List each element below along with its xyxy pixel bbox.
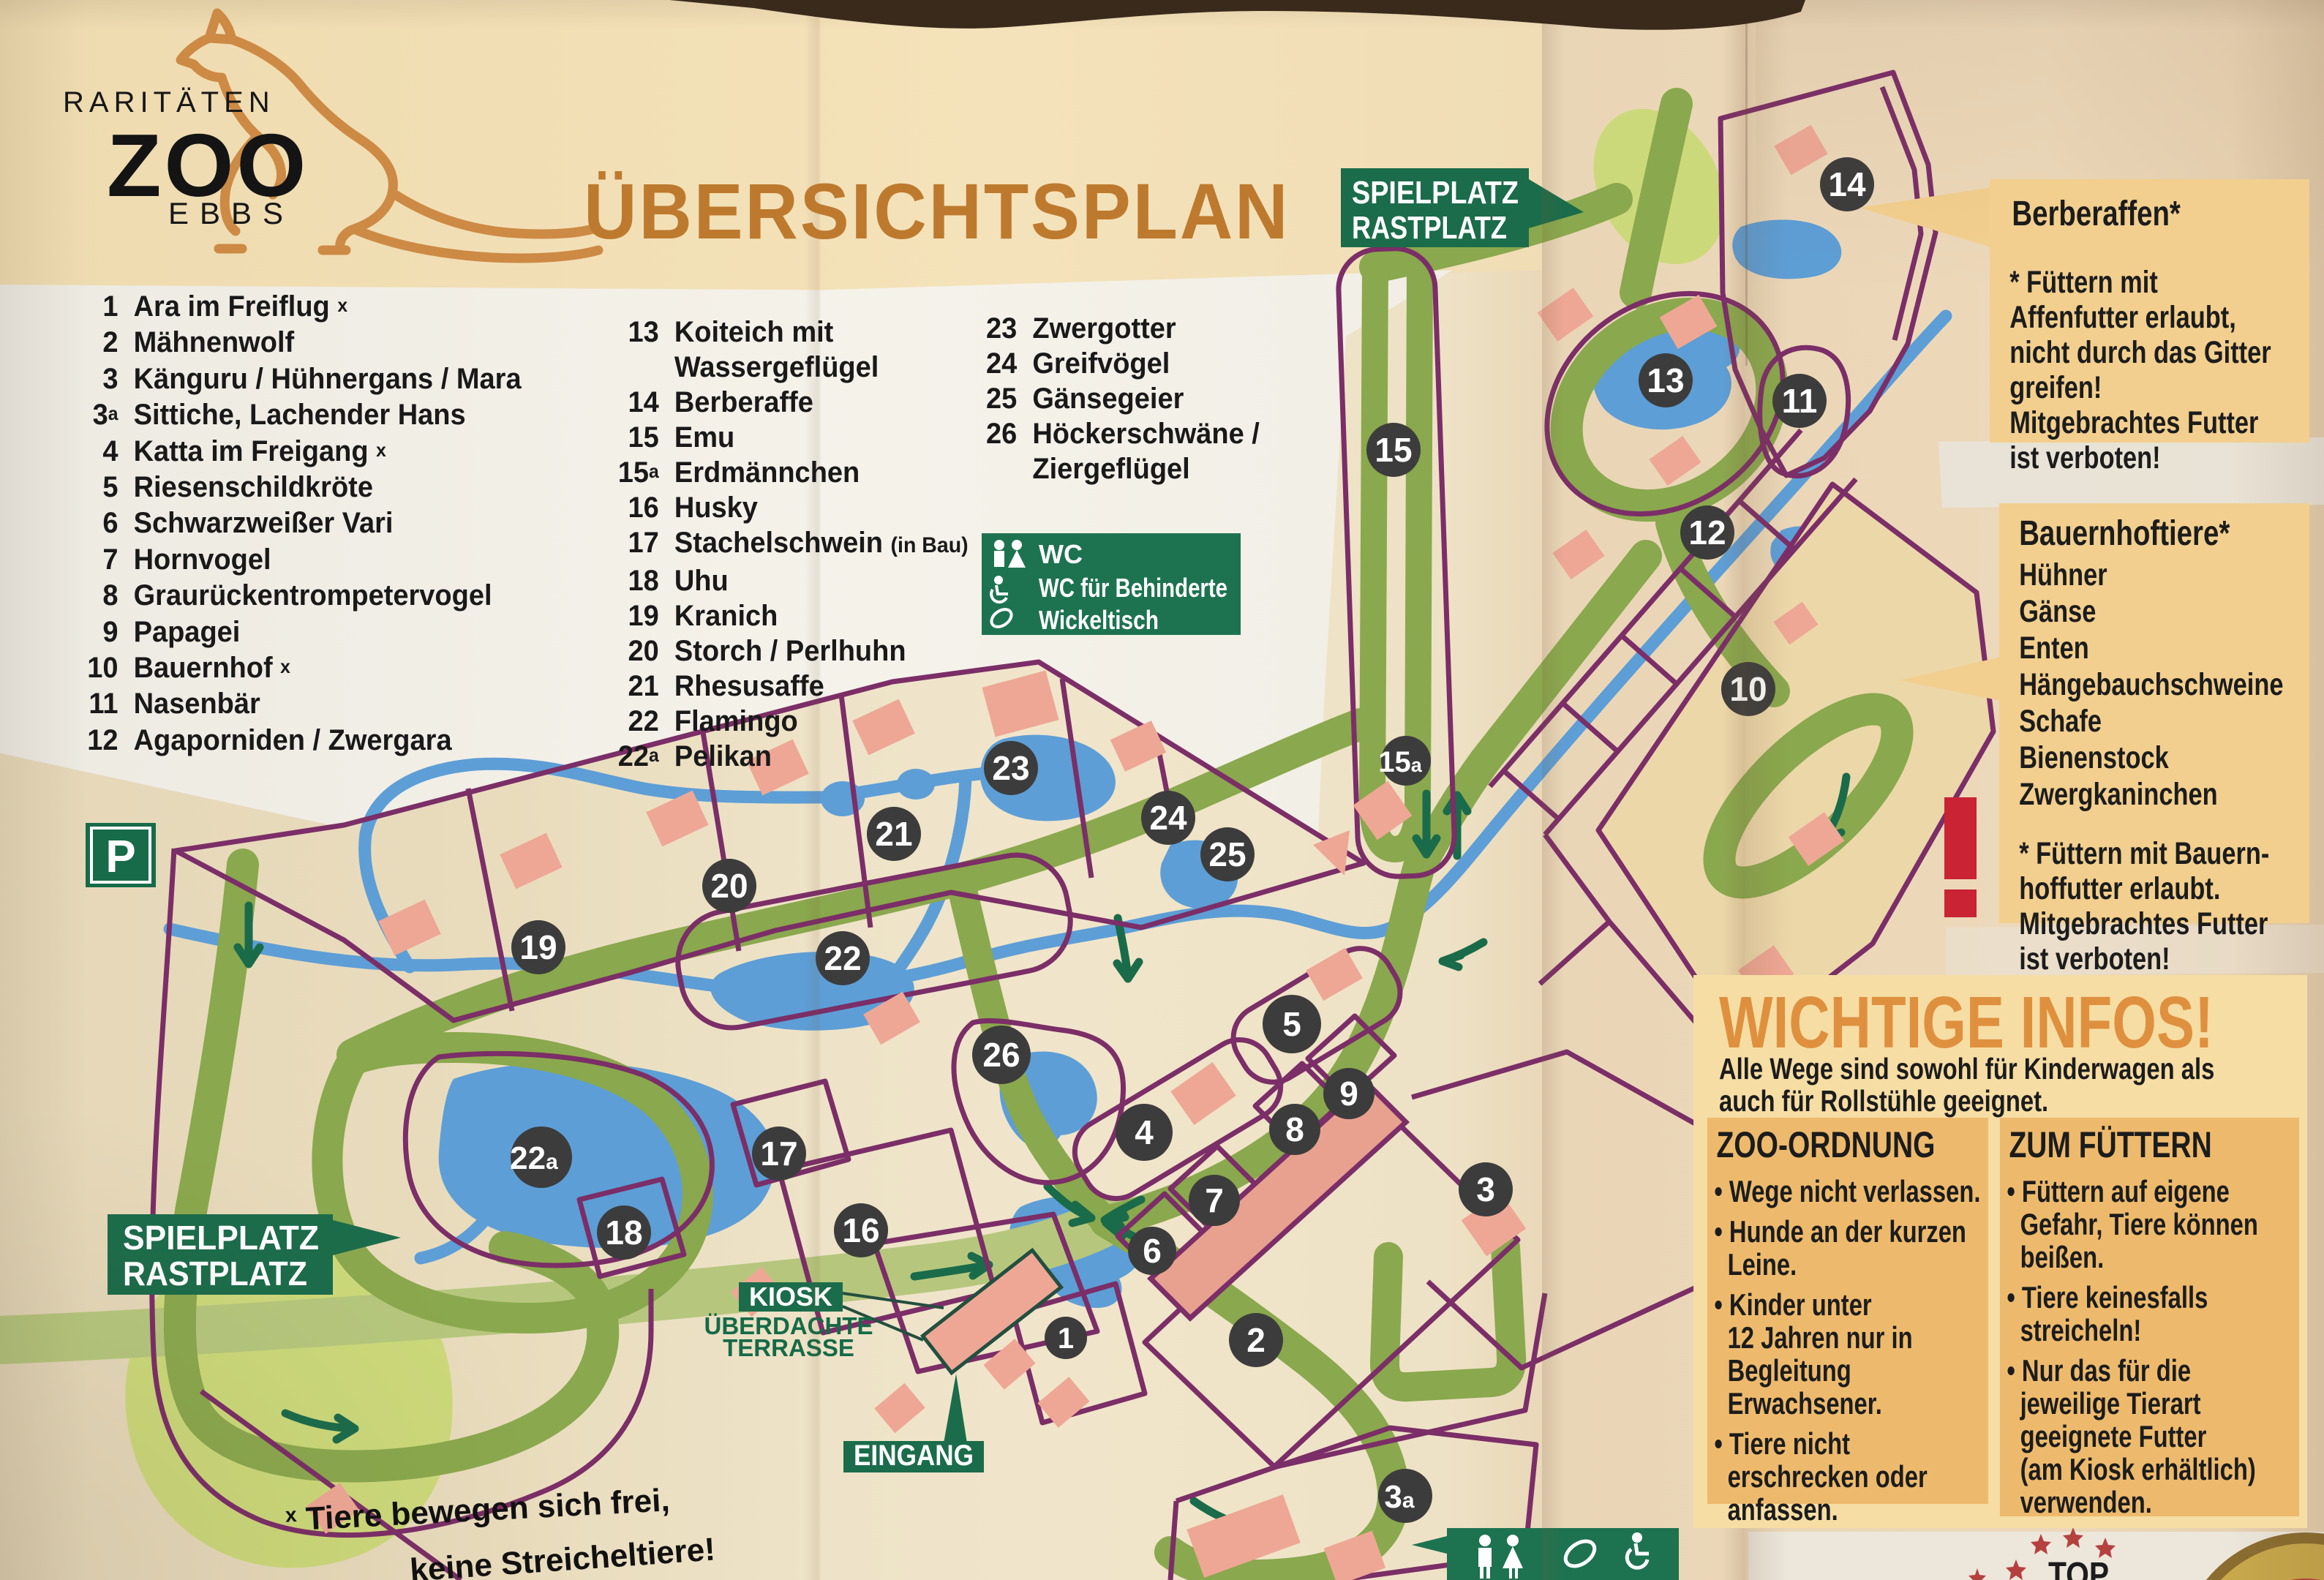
svg-text:13: 13	[1647, 361, 1684, 399]
svg-text:7: 7	[1205, 1181, 1224, 1219]
svg-text:20: 20	[710, 867, 748, 905]
svg-text:2: 2	[1246, 1321, 1266, 1359]
svg-text:24: 24	[1149, 799, 1187, 837]
svg-text:18: 18	[605, 1214, 642, 1252]
svg-text:WC für Behinderte: WC für Behinderte	[1039, 573, 1227, 603]
svg-text:9: 9	[1339, 1075, 1358, 1113]
svg-text:21: 21	[875, 815, 912, 853]
svg-text:SPIELPLATZ: SPIELPLATZ	[1352, 175, 1519, 211]
svg-text:15: 15	[1375, 431, 1412, 469]
svg-text:19: 19	[519, 928, 557, 966]
svg-text:EINGANG: EINGANG	[854, 1440, 974, 1472]
svg-text:P: P	[105, 832, 135, 882]
svg-text:26: 26	[982, 1036, 1020, 1074]
svg-text:25: 25	[1208, 835, 1246, 873]
svg-text:6: 6	[1143, 1232, 1162, 1270]
svg-text:TERRASSE: TERRASSE	[723, 1334, 854, 1361]
svg-text:12: 12	[1688, 513, 1726, 552]
svg-text:17: 17	[760, 1135, 797, 1173]
svg-text:5: 5	[1282, 1005, 1301, 1043]
svg-text:WC: WC	[1039, 539, 1083, 569]
svg-text:Wickeltisch: Wickeltisch	[1039, 605, 1159, 635]
svg-text:8: 8	[1285, 1110, 1304, 1148]
svg-text:1: 1	[1058, 1323, 1074, 1355]
svg-text:4: 4	[1135, 1113, 1154, 1151]
svg-text:3: 3	[1476, 1170, 1495, 1208]
svg-text:23: 23	[992, 749, 1029, 787]
svg-text:16: 16	[842, 1211, 879, 1249]
svg-text:RASTPLATZ: RASTPLATZ	[1352, 210, 1507, 246]
